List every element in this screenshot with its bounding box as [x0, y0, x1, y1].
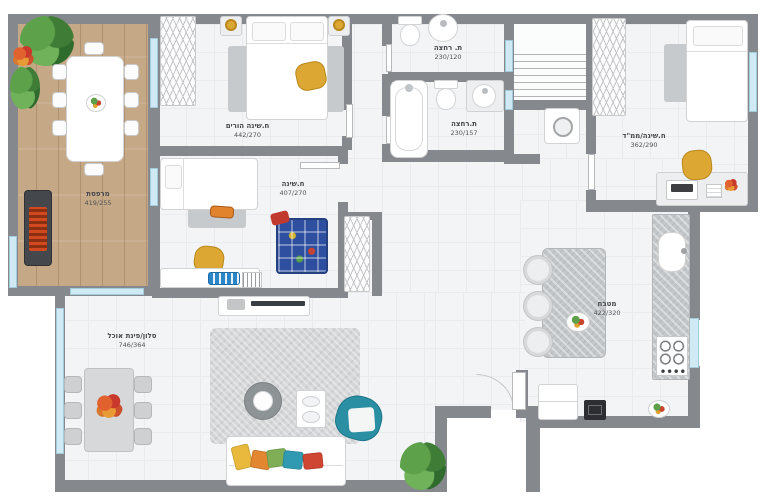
washer-drum [553, 117, 573, 137]
laptop-screen [671, 184, 693, 192]
outdoor-chair [84, 42, 104, 55]
window [150, 38, 158, 108]
room-dims: 419/255 [70, 199, 126, 208]
table-lamp [333, 19, 345, 31]
entry-door [512, 372, 526, 410]
washing-machine [544, 108, 580, 144]
bathtub-drain [405, 84, 413, 92]
room-dims: 746/364 [96, 341, 168, 350]
bbq-grill [24, 190, 52, 266]
dining-chair [134, 402, 152, 419]
outdoor-chair [124, 120, 139, 136]
room-label-kids-bedroom: ח.שינה 407/270 [262, 180, 324, 198]
bar-stool [524, 256, 552, 284]
speaker [227, 299, 245, 310]
room-dims: 407/270 [262, 189, 324, 198]
window [505, 40, 513, 72]
toy-xylophone [208, 272, 240, 285]
wall [372, 212, 382, 296]
tray [302, 411, 320, 423]
pillow [290, 22, 324, 41]
wall [152, 146, 348, 156]
refrigerator [538, 384, 578, 420]
outdoor-chair [124, 64, 139, 80]
wardrobe [160, 16, 196, 106]
window [749, 52, 757, 112]
bathtub [390, 80, 428, 158]
room-dims: 442/270 [210, 131, 285, 140]
pillow [302, 452, 324, 470]
dining-chair [64, 376, 82, 393]
duvet-fold [687, 51, 747, 52]
bar-stool [524, 328, 552, 356]
window [150, 168, 158, 206]
dining-chair [64, 402, 82, 419]
saferoom-door [588, 154, 595, 190]
armchair-cushion [348, 407, 376, 433]
single-bed [686, 20, 748, 122]
coffee-table [244, 382, 282, 420]
room-label-balcony: מרפסת 419/255 [70, 190, 126, 208]
table-centerpiece [95, 392, 123, 420]
room-dims: 422/320 [582, 309, 632, 318]
tray [302, 396, 320, 407]
toy-piano [242, 272, 262, 288]
play-rug [276, 218, 328, 274]
pillow [252, 22, 286, 41]
hall-closet [344, 216, 370, 292]
stove-cooktop [656, 336, 688, 376]
sofa [226, 436, 346, 486]
oven [584, 400, 606, 420]
duvet-fold [183, 159, 184, 209]
room-name: סלון/פינת אוכל [96, 332, 168, 341]
notebook [706, 184, 722, 198]
window [9, 236, 17, 288]
flower-pot [724, 178, 738, 192]
tray [253, 391, 273, 411]
toy-car [210, 205, 235, 219]
dining-chair [134, 376, 152, 393]
outdoor-chair [52, 120, 67, 136]
room-label-parents-bedroom: ח.שינה הורים 442/270 [210, 122, 285, 140]
faucet [681, 248, 687, 254]
room-name: מטבח [582, 300, 632, 309]
flower-pot [12, 44, 34, 68]
outdoor-chair [52, 64, 67, 80]
bbq-coals [29, 207, 47, 251]
duvet-fold [247, 43, 327, 44]
plant [400, 442, 446, 490]
room-dims: 230/120 [420, 53, 476, 62]
toilet [400, 24, 420, 46]
bar-stool [524, 292, 552, 320]
window [505, 90, 513, 110]
room-name: מרפסת [70, 190, 126, 199]
room-dims: 362/290 [608, 141, 680, 150]
window [56, 308, 64, 454]
laptop [666, 180, 698, 200]
wall [586, 190, 596, 212]
room-label-living-dining: סלון/פינת אוכל 746/364 [96, 332, 168, 350]
room-name: ח.שינה הורים [210, 122, 285, 131]
outdoor-chair [84, 163, 104, 176]
dining-chair [64, 428, 82, 445]
faucet [482, 88, 488, 94]
dining-chair [134, 428, 152, 445]
side-table [296, 390, 326, 428]
wardrobe [592, 18, 626, 116]
room-name: ת. רחצה [420, 44, 476, 53]
outdoor-chair [124, 92, 139, 108]
parents-room-door [346, 104, 353, 138]
wall [748, 14, 758, 212]
room-name: ח.שינה [262, 180, 324, 189]
room-dims: 230/157 [436, 129, 492, 138]
table-dish [86, 94, 106, 112]
plant [10, 66, 40, 110]
room-label-bathroom: ת.רחצה 230/157 [436, 120, 492, 138]
floor-plan: מרפסת 419/255 ח.שינה הורים 442/270 ת. רח… [0, 0, 767, 504]
window [689, 318, 699, 368]
wall [504, 14, 514, 164]
bedroom-rug [664, 44, 688, 102]
kids-room-door [300, 162, 340, 169]
room-name: ח.שינה/ממ"ד [608, 132, 680, 141]
single-bed [160, 158, 258, 210]
pillow [693, 26, 743, 46]
balcony-glass-door [70, 288, 144, 295]
salad-bowl [648, 400, 670, 418]
room-label-kitchen: מטבח 422/320 [582, 300, 632, 318]
wall [504, 154, 540, 164]
sink [428, 14, 458, 42]
bathtub-basin [395, 87, 423, 151]
wall [382, 14, 392, 46]
tv-screen [251, 301, 305, 306]
tv-console [218, 296, 310, 316]
fridge-door-line [539, 401, 577, 402]
pillow [165, 165, 182, 189]
oven-door [588, 405, 602, 415]
room-label-saferoom-bedroom: ח.שינה/ממ"ד 362/290 [608, 132, 680, 150]
room-label-toilet-room: ת. רחצה 230/120 [420, 44, 476, 62]
toilet-room-door [386, 44, 392, 72]
pillow [282, 450, 304, 470]
stair-treads [512, 54, 588, 104]
faucet [440, 20, 447, 27]
outdoor-chair [52, 92, 67, 108]
table-lamp [225, 19, 237, 31]
toilet [436, 88, 456, 110]
room-name: ת.רחצה [436, 120, 492, 129]
